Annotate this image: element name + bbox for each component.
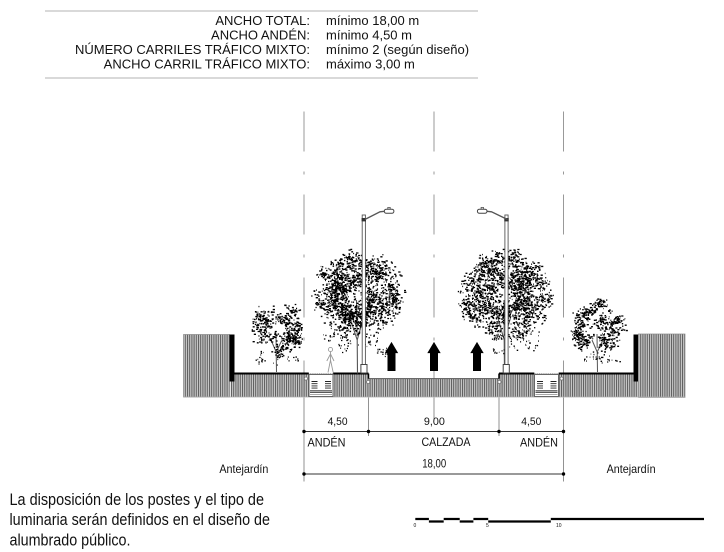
svg-text:0: 0: [414, 523, 417, 529]
svg-text:mínimo 18,00 m: mínimo 18,00 m: [326, 13, 419, 28]
svg-text:máximo 3,00 m: máximo 3,00 m: [326, 56, 415, 71]
svg-text:ANCHO TOTAL:: ANCHO TOTAL:: [215, 13, 310, 28]
svg-text:La disposición de los postes y: La disposición de los postes y el tipo d…: [10, 490, 265, 509]
svg-text:Antejardín: Antejardín: [607, 462, 656, 476]
svg-text:ANCHO ANDÉN:: ANCHO ANDÉN:: [211, 28, 310, 43]
svg-text:10: 10: [556, 523, 562, 529]
svg-text:Antejardín: Antejardín: [219, 462, 268, 476]
svg-text:NÚMERO CARRILES TRÁFICO MIXTO:: NÚMERO CARRILES TRÁFICO MIXTO:: [75, 42, 310, 57]
svg-text:CALZADA: CALZADA: [422, 435, 471, 449]
svg-text:4,50: 4,50: [328, 416, 348, 428]
svg-text:mínimo 2 (según diseño): mínimo 2 (según diseño): [326, 42, 469, 57]
svg-text:luminaria serán definidos en e: luminaria serán definidos en el diseño d…: [10, 510, 271, 529]
svg-text:18,00: 18,00: [422, 459, 446, 471]
svg-text:mínimo 4,50 m: mínimo 4,50 m: [326, 28, 412, 43]
svg-text:alumbrado público.: alumbrado público.: [10, 530, 131, 549]
svg-text:4,50: 4,50: [521, 416, 541, 428]
svg-text:9,00: 9,00: [424, 416, 445, 428]
svg-text:5: 5: [486, 523, 489, 529]
svg-text:ANDÉN: ANDÉN: [308, 435, 346, 450]
svg-text:ANCHO CARRIL TRÁFICO MIXTO:: ANCHO CARRIL TRÁFICO MIXTO:: [104, 56, 310, 71]
svg-text:ANDÉN: ANDÉN: [520, 435, 558, 450]
